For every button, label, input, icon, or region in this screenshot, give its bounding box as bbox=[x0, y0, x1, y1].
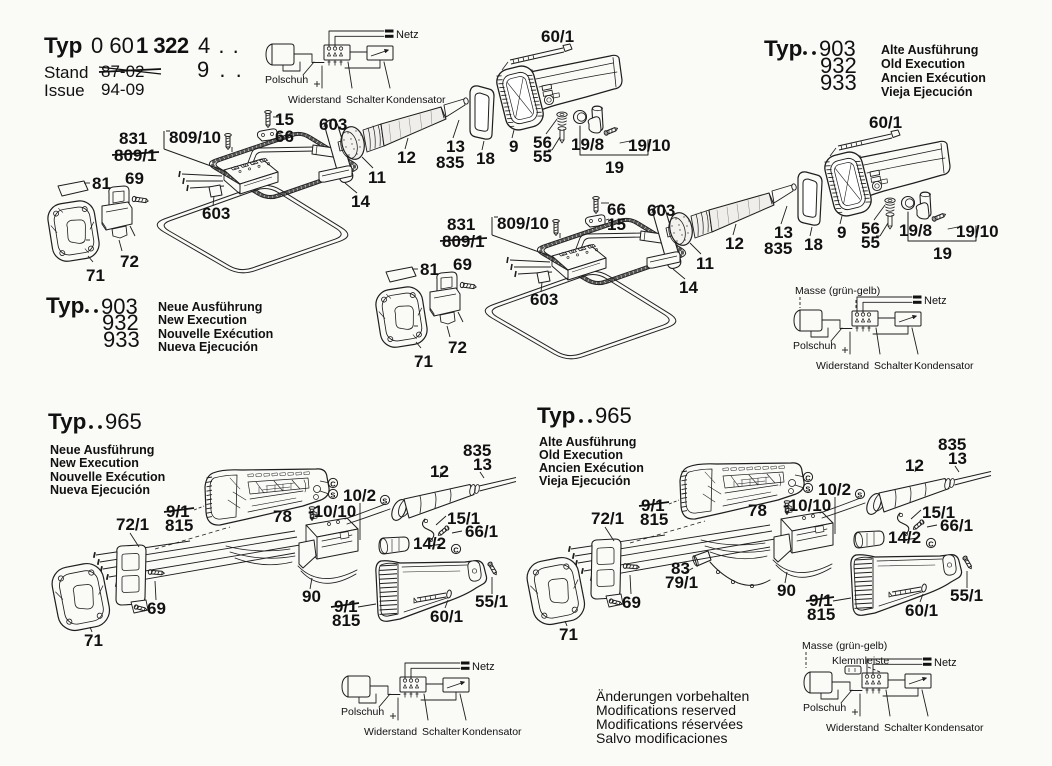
svg-text:55/1: 55/1 bbox=[475, 592, 508, 611]
svg-text:1 322: 1 322 bbox=[136, 33, 189, 58]
svg-text:Typ: Typ bbox=[764, 36, 802, 61]
svg-text:Nueva Ejecución: Nueva Ejecución bbox=[158, 340, 258, 354]
svg-text:94-09: 94-09 bbox=[101, 80, 144, 99]
svg-text:Schalter: Schalter bbox=[346, 94, 385, 106]
svg-text:19: 19 bbox=[605, 158, 624, 177]
svg-text:11: 11 bbox=[368, 168, 386, 187]
svg-text:815: 815 bbox=[332, 611, 360, 630]
svg-text:Alte Ausführung: Alte Ausführung bbox=[539, 435, 636, 449]
svg-text:Masse (grün-gelb): Masse (grün-gelb) bbox=[795, 285, 880, 297]
svg-text:Typ: Typ bbox=[44, 33, 82, 58]
svg-text:72: 72 bbox=[120, 252, 139, 271]
svg-text:14: 14 bbox=[351, 192, 370, 211]
svg-text:933: 933 bbox=[103, 327, 140, 352]
svg-text:15: 15 bbox=[607, 215, 626, 234]
svg-text:965: 965 bbox=[105, 409, 142, 434]
svg-text:Typ: Typ bbox=[46, 293, 84, 318]
svg-text:71: 71 bbox=[86, 266, 105, 285]
svg-text:Klemmleiste: Klemmleiste bbox=[832, 655, 889, 667]
svg-text:809/10: 809/10 bbox=[169, 128, 221, 147]
svg-text:965: 965 bbox=[595, 403, 632, 428]
svg-text:Vieja Ejecución: Vieja Ejecución bbox=[539, 474, 630, 488]
svg-text:60/1: 60/1 bbox=[430, 607, 463, 626]
svg-text:79/1: 79/1 bbox=[665, 573, 698, 592]
svg-text:New Execution: New Execution bbox=[50, 456, 139, 470]
svg-text:12: 12 bbox=[397, 148, 416, 167]
svg-text:Vieja Ejecución: Vieja Ejecución bbox=[881, 85, 972, 99]
svg-text:Nouvelle Exécution: Nouvelle Exécution bbox=[158, 327, 273, 341]
svg-text:0 60: 0 60 bbox=[91, 33, 134, 58]
svg-text:13: 13 bbox=[473, 455, 492, 474]
svg-text:Typ: Typ bbox=[48, 409, 86, 434]
svg-text:9: 9 bbox=[509, 137, 518, 156]
svg-text:933: 933 bbox=[820, 70, 857, 95]
svg-text:S: S bbox=[330, 491, 335, 500]
svg-text:Polschuh: Polschuh bbox=[265, 74, 308, 86]
svg-text:81: 81 bbox=[92, 174, 111, 193]
svg-text:4 . .: 4 . . bbox=[198, 33, 240, 58]
svg-text:60/1: 60/1 bbox=[541, 27, 574, 46]
svg-text:Neue Ausführung: Neue Ausführung bbox=[158, 300, 262, 314]
svg-text:Widerstand: Widerstand bbox=[288, 94, 341, 106]
svg-text:Old Execution: Old Execution bbox=[539, 448, 623, 462]
svg-text:9 . .: 9 . . bbox=[197, 57, 244, 82]
svg-text:19/8: 19/8 bbox=[571, 135, 604, 154]
svg-text:809/1: 809/1 bbox=[114, 146, 157, 165]
svg-text:Issue: Issue bbox=[44, 81, 85, 100]
svg-text:Typ: Typ bbox=[537, 403, 575, 428]
svg-text:Stand: Stand bbox=[44, 63, 88, 82]
svg-text:603: 603 bbox=[202, 204, 230, 223]
svg-text:Masse (grün-gelb): Masse (grün-gelb) bbox=[802, 640, 887, 652]
svg-text:72/1: 72/1 bbox=[116, 515, 149, 534]
svg-text:12: 12 bbox=[430, 462, 449, 481]
svg-text:Ancien Exécution: Ancien Exécution bbox=[881, 71, 986, 85]
svg-text:18: 18 bbox=[476, 149, 495, 168]
svg-text:14/2: 14/2 bbox=[413, 534, 446, 553]
svg-text:Ancien Exécution: Ancien Exécution bbox=[539, 461, 644, 475]
svg-text:78: 78 bbox=[273, 507, 292, 526]
svg-text:835: 835 bbox=[436, 153, 464, 172]
svg-text:Old Execution: Old Execution bbox=[881, 57, 965, 71]
svg-text:69: 69 bbox=[125, 169, 144, 188]
svg-text:19/10: 19/10 bbox=[628, 136, 671, 155]
svg-text:New Execution: New Execution bbox=[158, 313, 247, 327]
svg-text:69: 69 bbox=[147, 599, 166, 618]
svg-text:C: C bbox=[330, 480, 336, 489]
svg-text:66/1: 66/1 bbox=[465, 522, 498, 541]
svg-text:-10/10: -10/10 bbox=[308, 502, 356, 521]
svg-text:815: 815 bbox=[165, 516, 193, 535]
svg-text:Alte Ausführung: Alte Ausführung bbox=[881, 43, 978, 57]
svg-text:Netz: Netz bbox=[396, 29, 419, 41]
svg-text:Kondensator: Kondensator bbox=[386, 94, 446, 106]
svg-text:C: C bbox=[453, 546, 459, 555]
svg-text:55: 55 bbox=[533, 147, 552, 166]
svg-text:Nouvelle Exécution: Nouvelle Exécution bbox=[50, 470, 165, 484]
svg-text:Nueva Ejecución: Nueva Ejecución bbox=[50, 483, 150, 497]
svg-text:Salvo modificaciones: Salvo modificaciones bbox=[596, 730, 728, 746]
svg-text:603: 603 bbox=[319, 115, 347, 134]
svg-text:71: 71 bbox=[84, 631, 103, 650]
svg-text:90: 90 bbox=[302, 587, 321, 606]
svg-text:S: S bbox=[382, 497, 387, 506]
svg-text:66: 66 bbox=[275, 127, 294, 146]
svg-text:Neue Ausführung: Neue Ausführung bbox=[50, 443, 154, 457]
